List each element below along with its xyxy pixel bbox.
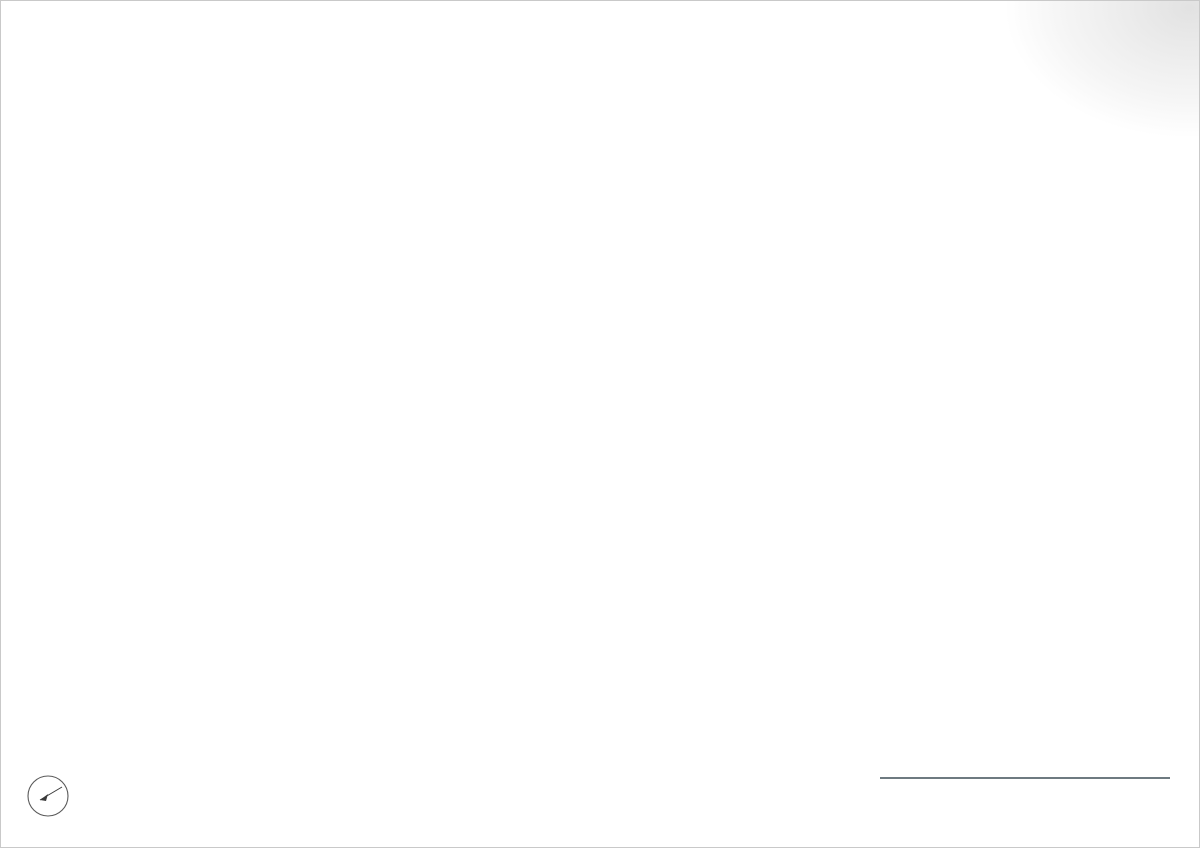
north-arrow-icon [28,776,68,816]
paper [0,0,1200,848]
plan-sheet [0,0,1200,848]
plan-drawing [0,0,1200,848]
